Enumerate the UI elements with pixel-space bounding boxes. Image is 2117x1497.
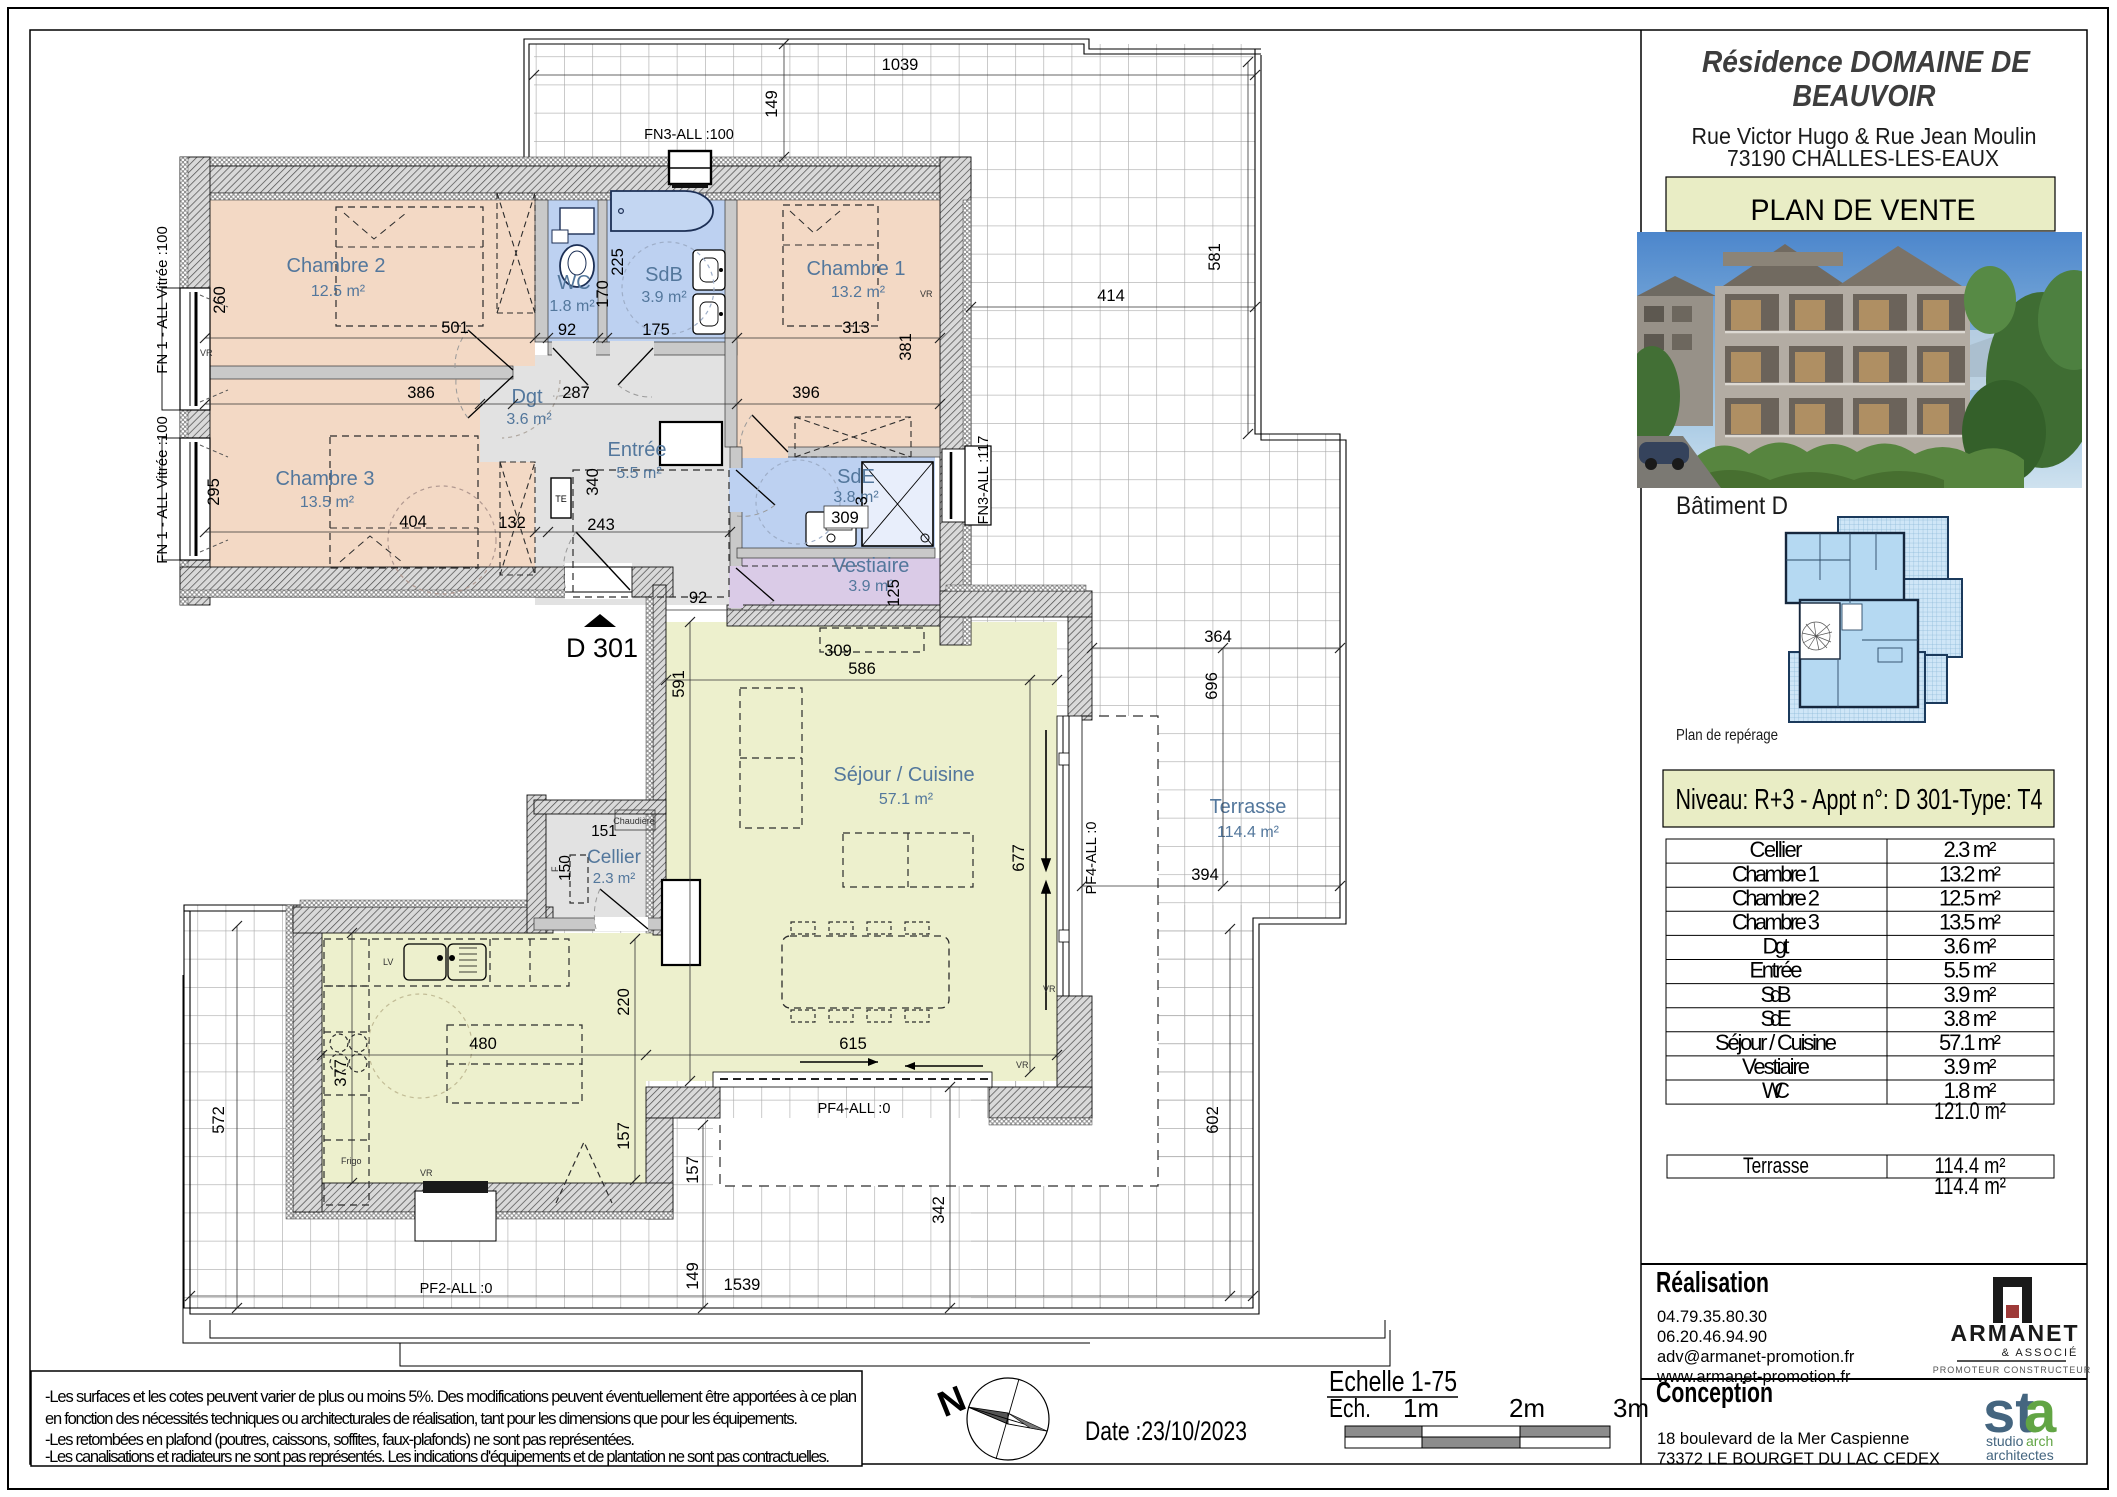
svg-text:57.1 m²: 57.1 m²: [1939, 1030, 2001, 1055]
svg-text:572: 572: [210, 1106, 228, 1134]
svg-text:Conception: Conception: [1656, 1377, 1773, 1409]
svg-text:175: 175: [642, 321, 670, 339]
svg-text:PF4-ALL :0: PF4-ALL :0: [818, 1101, 891, 1117]
svg-text:Dgt: Dgt: [511, 386, 543, 408]
svg-text:3.9 m²: 3.9 m²: [641, 289, 687, 306]
svg-text:13.5 m²: 13.5 m²: [300, 494, 355, 511]
svg-text:VR: VR: [920, 289, 933, 299]
svg-text:73190 CHALLES-LES-EAUX: 73190 CHALLES-LES-EAUX: [1727, 145, 1999, 171]
svg-text:2.3 m²: 2.3 m²: [593, 870, 636, 887]
svg-text:04.79.35.80.30: 04.79.35.80.30: [1657, 1308, 1767, 1326]
svg-text:Vestiaire: Vestiaire: [1742, 1054, 1810, 1079]
svg-text:581: 581: [1206, 243, 1224, 271]
svg-text:602: 602: [1204, 1106, 1222, 1134]
svg-text:309: 309: [831, 509, 859, 527]
svg-text:FN3-ALL :100: FN3-ALL :100: [644, 127, 734, 143]
svg-text:3.8 m²: 3.8 m²: [1944, 1006, 1997, 1031]
svg-text:313: 313: [842, 319, 870, 337]
svg-text:architectes: architectes: [1986, 1447, 2054, 1463]
svg-text:Niveau: R+3 - Appt n°: D 301-: Niveau: R+3 - Appt n°: D 301-Type: T4: [1676, 784, 2043, 816]
svg-text:340: 340: [584, 468, 602, 496]
svg-text:3.6 m²: 3.6 m²: [1944, 934, 1997, 959]
svg-text:Terrasse: Terrasse: [1210, 796, 1287, 818]
svg-text:13.2 m²: 13.2 m²: [1939, 861, 2001, 886]
svg-text:FN3-ALL :117: FN3-ALL :117: [976, 436, 992, 525]
svg-text:& ASSOCIÉ: & ASSOCIÉ: [2002, 1346, 2079, 1359]
svg-text:386: 386: [407, 384, 435, 402]
svg-text:377: 377: [332, 1059, 350, 1087]
svg-text:D 301: D 301: [566, 633, 638, 663]
svg-text:VR: VR: [1016, 1060, 1029, 1070]
svg-text:586: 586: [848, 660, 876, 678]
svg-text:FN 1 - ALL Vitrée :100: FN 1 - ALL Vitrée :100: [154, 226, 171, 374]
svg-text:en fonction des nécessités tec: en fonction des nécessités techniques ou…: [45, 1410, 798, 1428]
svg-text:414: 414: [1097, 287, 1125, 305]
svg-text:677: 677: [1010, 844, 1028, 872]
svg-text:VR: VR: [1043, 984, 1056, 994]
svg-text:PF2-ALL :0: PF2-ALL :0: [420, 1281, 493, 1297]
svg-text:SdB: SdB: [645, 264, 683, 286]
svg-text:5.5 m²: 5.5 m²: [616, 465, 662, 482]
svg-text:157: 157: [684, 1156, 702, 1184]
svg-text:LV: LV: [383, 957, 393, 967]
svg-text:3.6 m²: 3.6 m²: [506, 411, 552, 428]
svg-text:13.2 m²: 13.2 m²: [831, 284, 886, 301]
svg-text:5.5 m²: 5.5 m²: [1944, 958, 1997, 983]
svg-text:1m: 1m: [1403, 1393, 1439, 1423]
svg-text:615: 615: [839, 1035, 867, 1053]
svg-text:92: 92: [558, 321, 576, 339]
svg-text:121.0 m²: 121.0 m²: [1934, 1098, 2006, 1125]
svg-text:3.9 m²: 3.9 m²: [1944, 982, 1997, 1007]
svg-text:132: 132: [498, 514, 526, 532]
svg-text:114.4 m²: 114.4 m²: [1217, 824, 1280, 841]
svg-text:13.5 m²: 13.5 m²: [1939, 910, 2001, 935]
svg-text:Date :23/10/2023: Date :23/10/2023: [1085, 1416, 1247, 1446]
svg-text:-Les retombées en plafond (pou: -Les retombées en plafond (poutres, cais…: [45, 1431, 635, 1449]
svg-text:501: 501: [441, 319, 469, 337]
svg-text:Chambre 3: Chambre 3: [276, 468, 375, 490]
svg-text:Bâtiment D: Bâtiment D: [1676, 492, 1788, 520]
svg-text:Entrée: Entrée: [1750, 958, 1803, 983]
svg-text:SdE: SdE: [1761, 1006, 1792, 1031]
svg-text:18 boulevard de la Mer Caspien: 18 boulevard de la Mer Caspienne: [1657, 1430, 1909, 1448]
svg-text:243: 243: [587, 516, 615, 534]
svg-text:SdE: SdE: [837, 466, 875, 488]
svg-text:381: 381: [897, 333, 915, 361]
svg-text:SdB: SdB: [1761, 982, 1792, 1007]
svg-text:Plan de repérage: Plan de repérage: [1676, 727, 1778, 744]
svg-text:-Les surfaces et les cotes peu: -Les surfaces et les cotes peuvent varie…: [45, 1388, 857, 1406]
svg-text:170: 170: [594, 280, 612, 308]
svg-text:06.20.46.94.90: 06.20.46.94.90: [1657, 1328, 1767, 1346]
svg-text:57.1 m²: 57.1 m²: [879, 791, 934, 808]
svg-text:3m: 3m: [1613, 1393, 1649, 1423]
svg-text:Cellier: Cellier: [587, 847, 642, 868]
svg-text:Cellier: Cellier: [1750, 837, 1803, 862]
svg-text:Entrée: Entrée: [608, 439, 667, 461]
svg-text:220: 220: [615, 988, 633, 1016]
svg-text:2m: 2m: [1509, 1393, 1545, 1423]
svg-text:WC: WC: [1762, 1078, 1790, 1103]
svg-text:Séjour / Cuisine: Séjour / Cuisine: [1715, 1030, 1837, 1055]
svg-text:157: 157: [615, 1122, 633, 1150]
svg-text:342: 342: [930, 1196, 948, 1224]
svg-text:151: 151: [591, 823, 617, 840]
svg-text:Résidence DOMAINE DE: Résidence DOMAINE DE: [1702, 44, 2031, 79]
svg-text:Chaudière: Chaudière: [613, 816, 655, 826]
svg-text:2.3 m²: 2.3 m²: [1944, 837, 1997, 862]
svg-text:591: 591: [670, 670, 688, 698]
svg-text:Réalisation: Réalisation: [1656, 1267, 1769, 1299]
svg-text:WC: WC: [557, 272, 590, 294]
svg-text:125: 125: [885, 579, 903, 607]
svg-text:adv@armanet-promotion.fr: adv@armanet-promotion.fr: [1657, 1348, 1855, 1366]
svg-text:1.8 m²: 1.8 m²: [549, 298, 595, 315]
svg-text:Chambre 2: Chambre 2: [1732, 885, 1820, 910]
svg-text:Terrasse: Terrasse: [1743, 1153, 1809, 1178]
svg-text:PF4-ALL :0: PF4-ALL :0: [1084, 822, 1100, 895]
svg-text:114.4 m²: 114.4 m²: [1934, 1173, 2006, 1200]
svg-text:Dgt: Dgt: [1763, 934, 1790, 959]
svg-text:396: 396: [792, 384, 820, 402]
svg-text:Chambre 1: Chambre 1: [807, 258, 906, 280]
svg-text:-Les canalisations et radiateu: -Les canalisations et radiateurs ne sont…: [45, 1448, 830, 1466]
svg-text:92: 92: [689, 589, 707, 607]
svg-text:394: 394: [1191, 866, 1219, 884]
svg-text:149: 149: [684, 1262, 702, 1290]
svg-text:480: 480: [469, 1035, 497, 1053]
svg-text:3.9 m²: 3.9 m²: [1944, 1054, 1997, 1079]
svg-text:Chambre 2: Chambre 2: [287, 255, 386, 277]
svg-text:404: 404: [399, 513, 427, 531]
svg-text:BEAUVOIR: BEAUVOIR: [1793, 78, 1937, 113]
svg-text:Frigo: Frigo: [341, 1156, 362, 1166]
svg-text:Chambre 1: Chambre 1: [1732, 861, 1820, 886]
svg-text:1039: 1039: [882, 56, 919, 74]
svg-text:12.5 m²: 12.5 m²: [1939, 885, 2001, 910]
svg-text:150: 150: [557, 855, 574, 881]
svg-text:260: 260: [211, 286, 229, 314]
svg-text:Chambre 3: Chambre 3: [1732, 910, 1820, 935]
svg-text:ARMANET: ARMANET: [1951, 1320, 2080, 1346]
svg-text:PLAN DE VENTE: PLAN DE VENTE: [1751, 194, 1976, 227]
svg-text:73372 LE BOURGET DU LAC CEDEX: 73372 LE BOURGET DU LAC CEDEX: [1657, 1450, 1940, 1468]
svg-text:Vestiaire: Vestiaire: [833, 555, 910, 577]
svg-text:696: 696: [1203, 672, 1221, 700]
svg-text:Séjour / Cuisine: Séjour / Cuisine: [833, 764, 974, 786]
svg-text:TE: TE: [555, 494, 567, 504]
svg-text:FN 1 - ALL Vitrée :100: FN 1 - ALL Vitrée :100: [154, 416, 171, 564]
svg-text:309: 309: [824, 642, 852, 660]
svg-text:287: 287: [562, 384, 590, 402]
svg-text:VR: VR: [420, 1168, 433, 1178]
svg-text:295: 295: [205, 478, 223, 506]
svg-text:149: 149: [763, 90, 781, 118]
svg-text:12.5 m²: 12.5 m²: [311, 283, 366, 300]
svg-text:PROMOTEUR CONSTRUCTEUR: PROMOTEUR CONSTRUCTEUR: [1933, 1365, 2092, 1375]
svg-text:225: 225: [609, 248, 627, 276]
svg-text:1539: 1539: [724, 1276, 761, 1294]
svg-text:VR: VR: [200, 348, 213, 358]
svg-text:Ech.: Ech.: [1329, 1393, 1371, 1423]
